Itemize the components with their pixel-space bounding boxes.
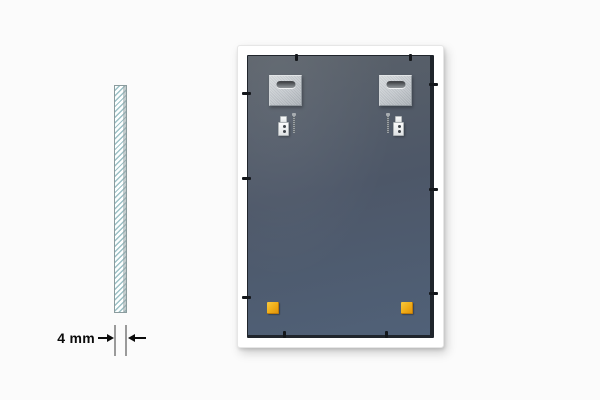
retainer-clip xyxy=(429,188,438,191)
hanger-plate-left xyxy=(269,75,302,106)
hook-body xyxy=(393,122,404,136)
retainer-clip xyxy=(295,54,298,61)
retainer-clip xyxy=(242,177,251,180)
screw-thread xyxy=(293,116,295,133)
hanger-plate-right xyxy=(379,75,412,106)
product-illustration: 4 mm xyxy=(0,0,600,400)
hook-hole xyxy=(283,125,286,128)
dimension-arrow-left-icon xyxy=(135,337,146,339)
retainer-clip xyxy=(409,54,412,61)
hook-body xyxy=(278,122,289,136)
retainer-clip xyxy=(242,92,251,95)
extension-line-left xyxy=(114,325,116,356)
retainer-clip xyxy=(429,292,438,295)
retainer-clip xyxy=(429,83,438,86)
dimension-arrowhead-left-icon xyxy=(128,334,135,342)
wall-hook-hardware-left xyxy=(278,116,289,136)
keyhole-slot-icon xyxy=(276,81,295,88)
dimension-label: 4 mm xyxy=(38,330,95,346)
retainer-clip xyxy=(283,331,286,338)
screw-hardware-left xyxy=(292,113,296,134)
keyhole-slot-icon xyxy=(386,81,405,88)
mirror-back-frame xyxy=(237,45,444,348)
corner-pad-bottom-right xyxy=(401,302,413,314)
dimension-arrowhead-right-icon xyxy=(107,334,114,342)
retainer-clip xyxy=(242,296,251,299)
retainer-clip xyxy=(385,331,388,338)
screw-thread xyxy=(387,116,389,133)
hook-hole xyxy=(398,125,401,128)
wall-hook-hardware-right xyxy=(393,116,404,136)
glass-cross-section-strip xyxy=(114,85,127,313)
extension-line-right xyxy=(125,325,127,356)
hook-hole xyxy=(283,130,286,133)
corner-pad-bottom-left xyxy=(267,302,279,314)
screw-hardware-right xyxy=(386,113,390,134)
hook-hole xyxy=(398,130,401,133)
